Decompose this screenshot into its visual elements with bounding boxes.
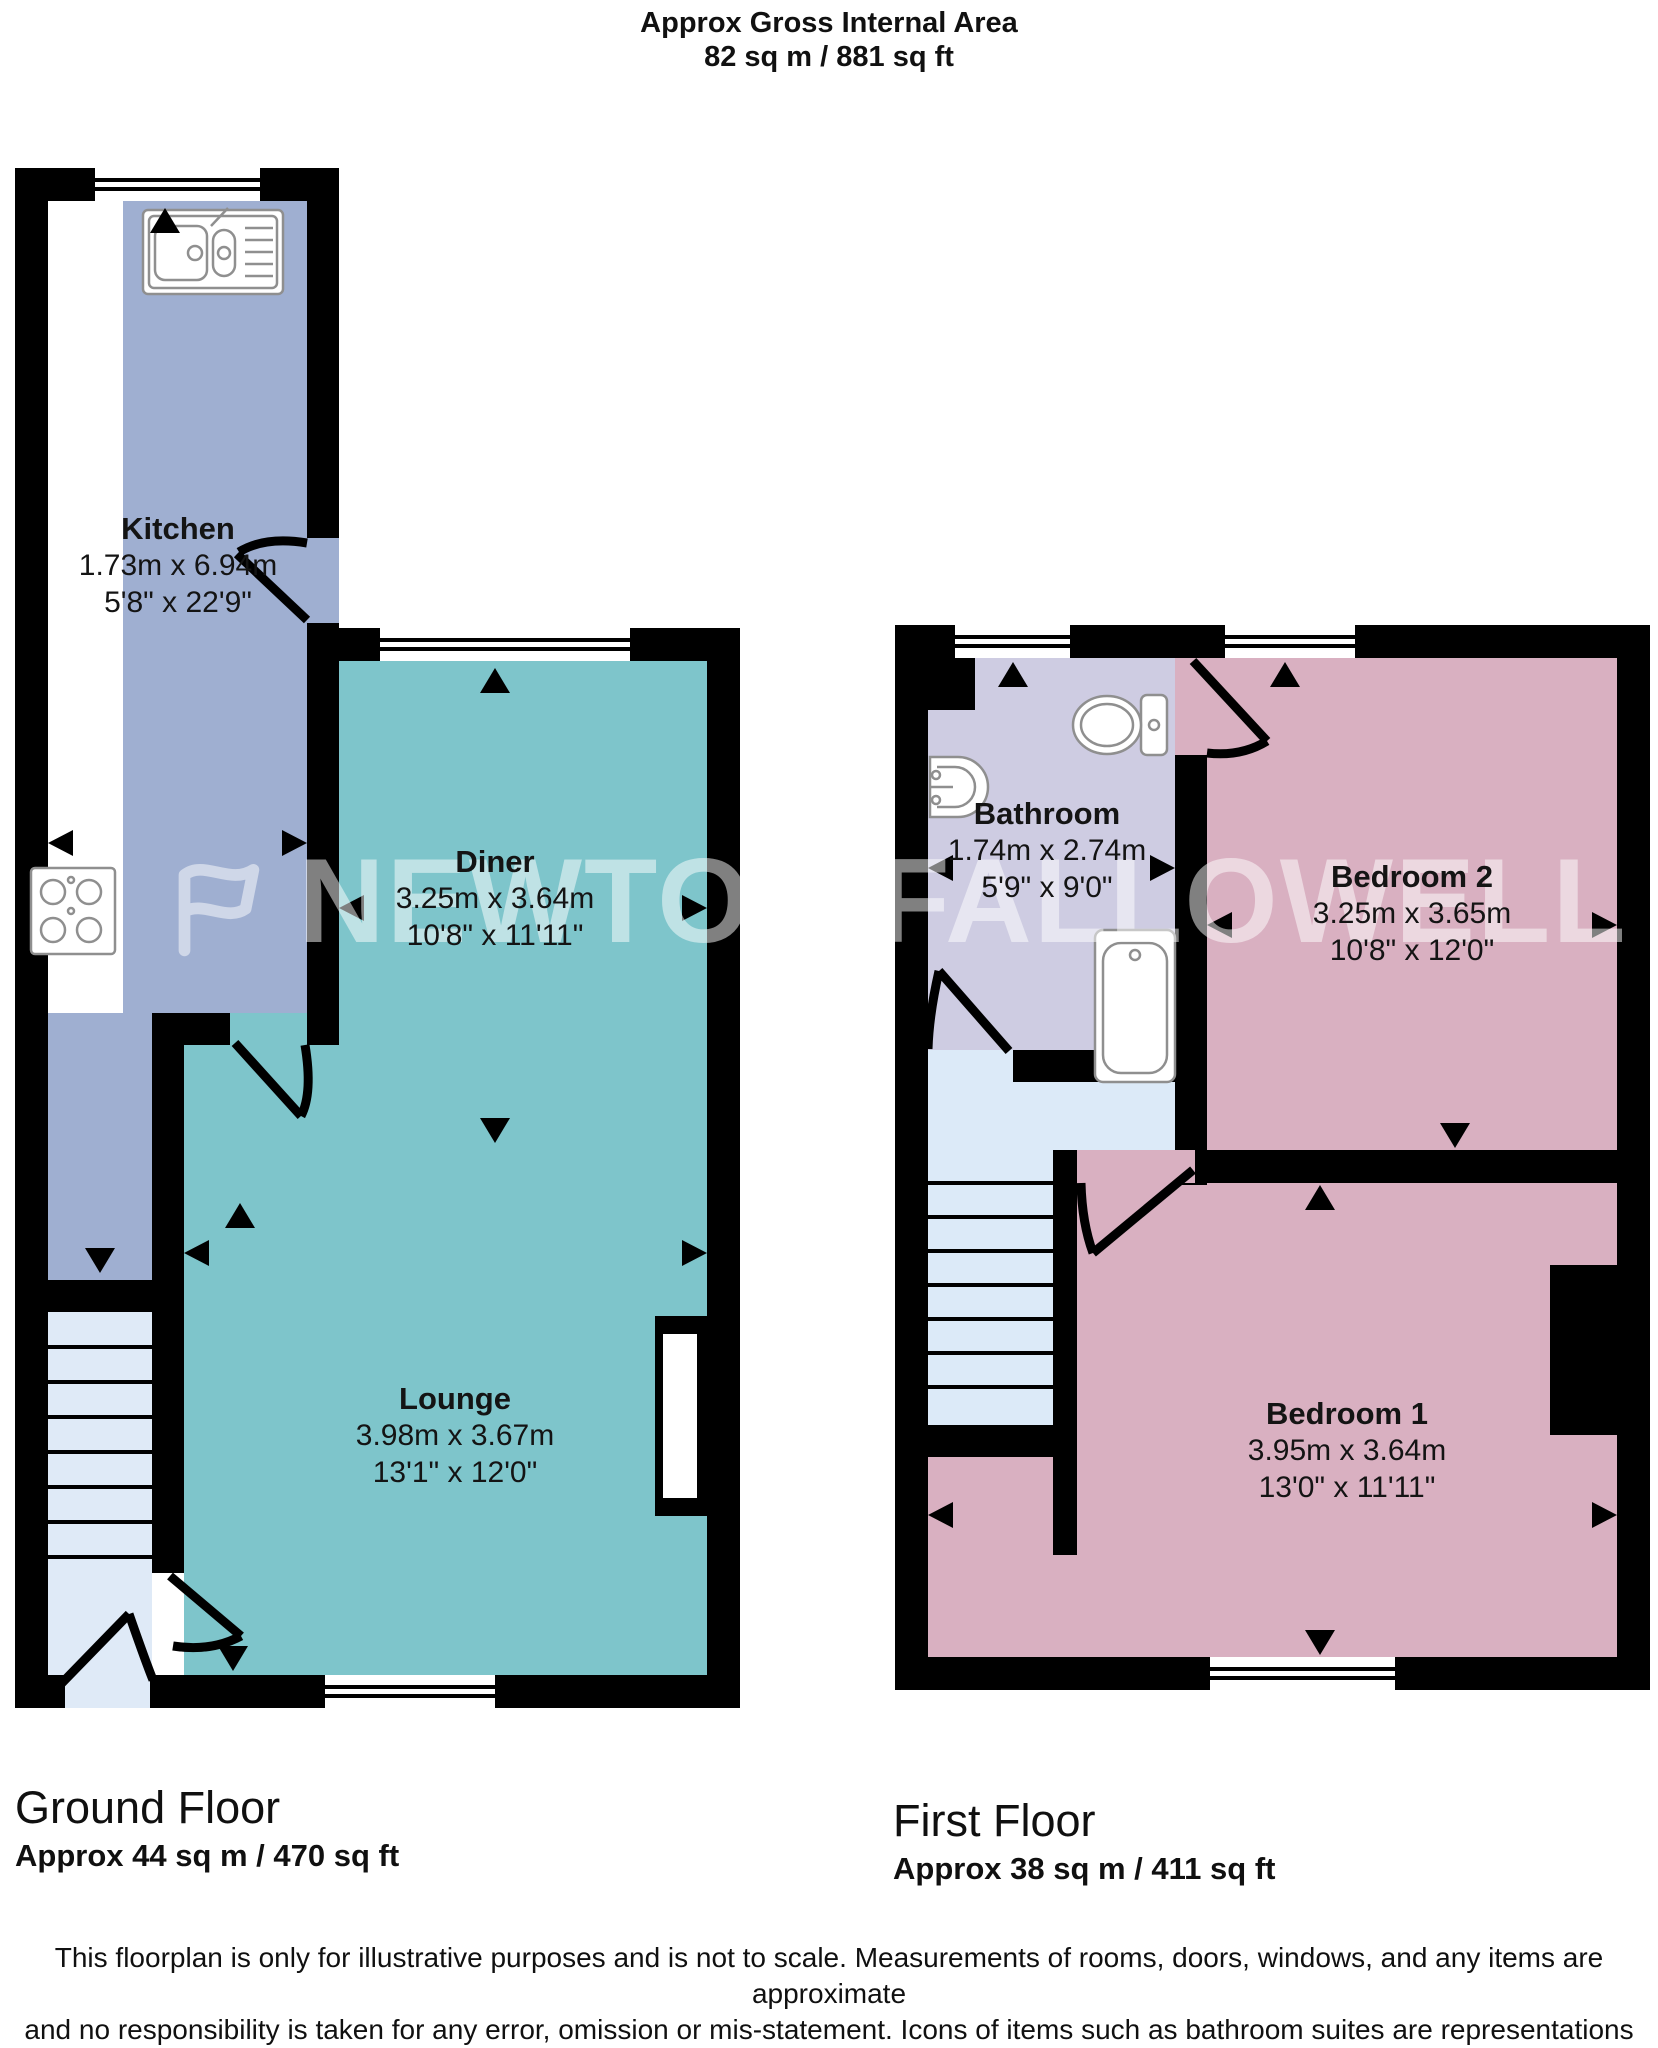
page-title: Approx Gross Internal Area 82 sq m / 881… bbox=[0, 6, 1658, 74]
room-metric: 3.25m x 3.65m bbox=[1313, 895, 1511, 932]
room-name: Bathroom bbox=[948, 795, 1146, 832]
room-imperial: 13'0" x 11'11" bbox=[1248, 1469, 1446, 1506]
floor-area: Approx 38 sq m / 411 sq ft bbox=[893, 1847, 1275, 1891]
room-name: Diner bbox=[396, 843, 594, 880]
stairwell-floor bbox=[928, 1150, 1053, 1425]
gross-internal-area-title: Approx Gross Internal Area bbox=[0, 6, 1658, 40]
room-label-bathroom: Bathroom 1.74m x 2.74m 5'9" x 9'0" bbox=[948, 795, 1146, 906]
room-name: Bedroom 2 bbox=[1313, 858, 1511, 895]
ground-floor-caption: Ground Floor Approx 44 sq m / 470 sq ft bbox=[15, 1782, 399, 1878]
disclaimer: This floorplan is only for illustrative … bbox=[0, 1940, 1658, 2048]
landing-floor bbox=[928, 1082, 1175, 1150]
floor-name: Ground Floor bbox=[15, 1782, 399, 1834]
room-name: Bedroom 1 bbox=[1248, 1395, 1446, 1432]
room-name: Kitchen bbox=[79, 510, 277, 547]
floor-name: First Floor bbox=[893, 1795, 1275, 1847]
chimney-breast bbox=[1550, 1265, 1617, 1435]
room-label-bedroom2: Bedroom 2 3.25m x 3.65m 10'8" x 12'0" bbox=[1313, 858, 1511, 969]
diner-lounge-floor bbox=[339, 661, 707, 1675]
first-floor-plan bbox=[895, 625, 1650, 1690]
room-imperial: 13'1" x 12'0" bbox=[356, 1454, 554, 1491]
first-floor-caption: First Floor Approx 38 sq m / 411 sq ft bbox=[893, 1795, 1275, 1891]
lounge-floor-left bbox=[184, 1045, 339, 1675]
room-imperial: 5'8" x 22'9" bbox=[79, 584, 277, 621]
room-metric: 3.95m x 3.64m bbox=[1248, 1432, 1446, 1469]
room-label-bedroom1: Bedroom 1 3.95m x 3.64m 13'0" x 11'11" bbox=[1248, 1395, 1446, 1506]
bath-icon bbox=[1095, 930, 1175, 1082]
kitchen-window bbox=[95, 168, 260, 201]
room-metric: 1.74m x 2.74m bbox=[948, 832, 1146, 869]
bedroom1-window bbox=[1210, 1657, 1395, 1690]
floor-area: Approx 44 sq m / 470 sq ft bbox=[15, 1834, 399, 1878]
room-label-diner: Diner 3.25m x 3.64m 10'8" x 11'11" bbox=[396, 843, 594, 954]
lounge-window bbox=[325, 1675, 495, 1708]
room-metric: 3.98m x 3.67m bbox=[356, 1417, 554, 1454]
toilet-icon bbox=[1073, 695, 1167, 755]
first-floor-drawing bbox=[895, 625, 1650, 1690]
room-imperial: 10'8" x 11'11" bbox=[396, 917, 594, 954]
room-label-kitchen: Kitchen 1.73m x 6.94m 5'8" x 22'9" bbox=[79, 510, 277, 621]
disclaimer-line: and no responsibility is taken for any e… bbox=[0, 2012, 1658, 2048]
room-label-lounge: Lounge 3.98m x 3.67m 13'1" x 12'0" bbox=[356, 1380, 554, 1491]
bedroom1-floor-understairs bbox=[928, 1457, 1053, 1657]
hob-icon bbox=[31, 868, 115, 954]
stairs-hall-floor bbox=[48, 1312, 152, 1675]
room-name: Lounge bbox=[356, 1380, 554, 1417]
floorplan-page: Approx Gross Internal Area 82 sq m / 881… bbox=[0, 0, 1658, 2048]
diner-window bbox=[380, 628, 630, 661]
fireplace-alcove bbox=[663, 1334, 697, 1498]
room-imperial: 5'9" x 9'0" bbox=[948, 869, 1146, 906]
room-metric: 3.25m x 3.64m bbox=[396, 880, 594, 917]
disclaimer-line: This floorplan is only for illustrative … bbox=[0, 1940, 1658, 2012]
room-imperial: 10'8" x 12'0" bbox=[1313, 932, 1511, 969]
gross-internal-area-value: 82 sq m / 881 sq ft bbox=[0, 40, 1658, 74]
room-metric: 1.73m x 6.94m bbox=[79, 547, 277, 584]
kitchen-floor-lower bbox=[48, 1013, 152, 1280]
bedroom2-window bbox=[1225, 625, 1355, 658]
bathroom-window bbox=[955, 625, 1070, 658]
